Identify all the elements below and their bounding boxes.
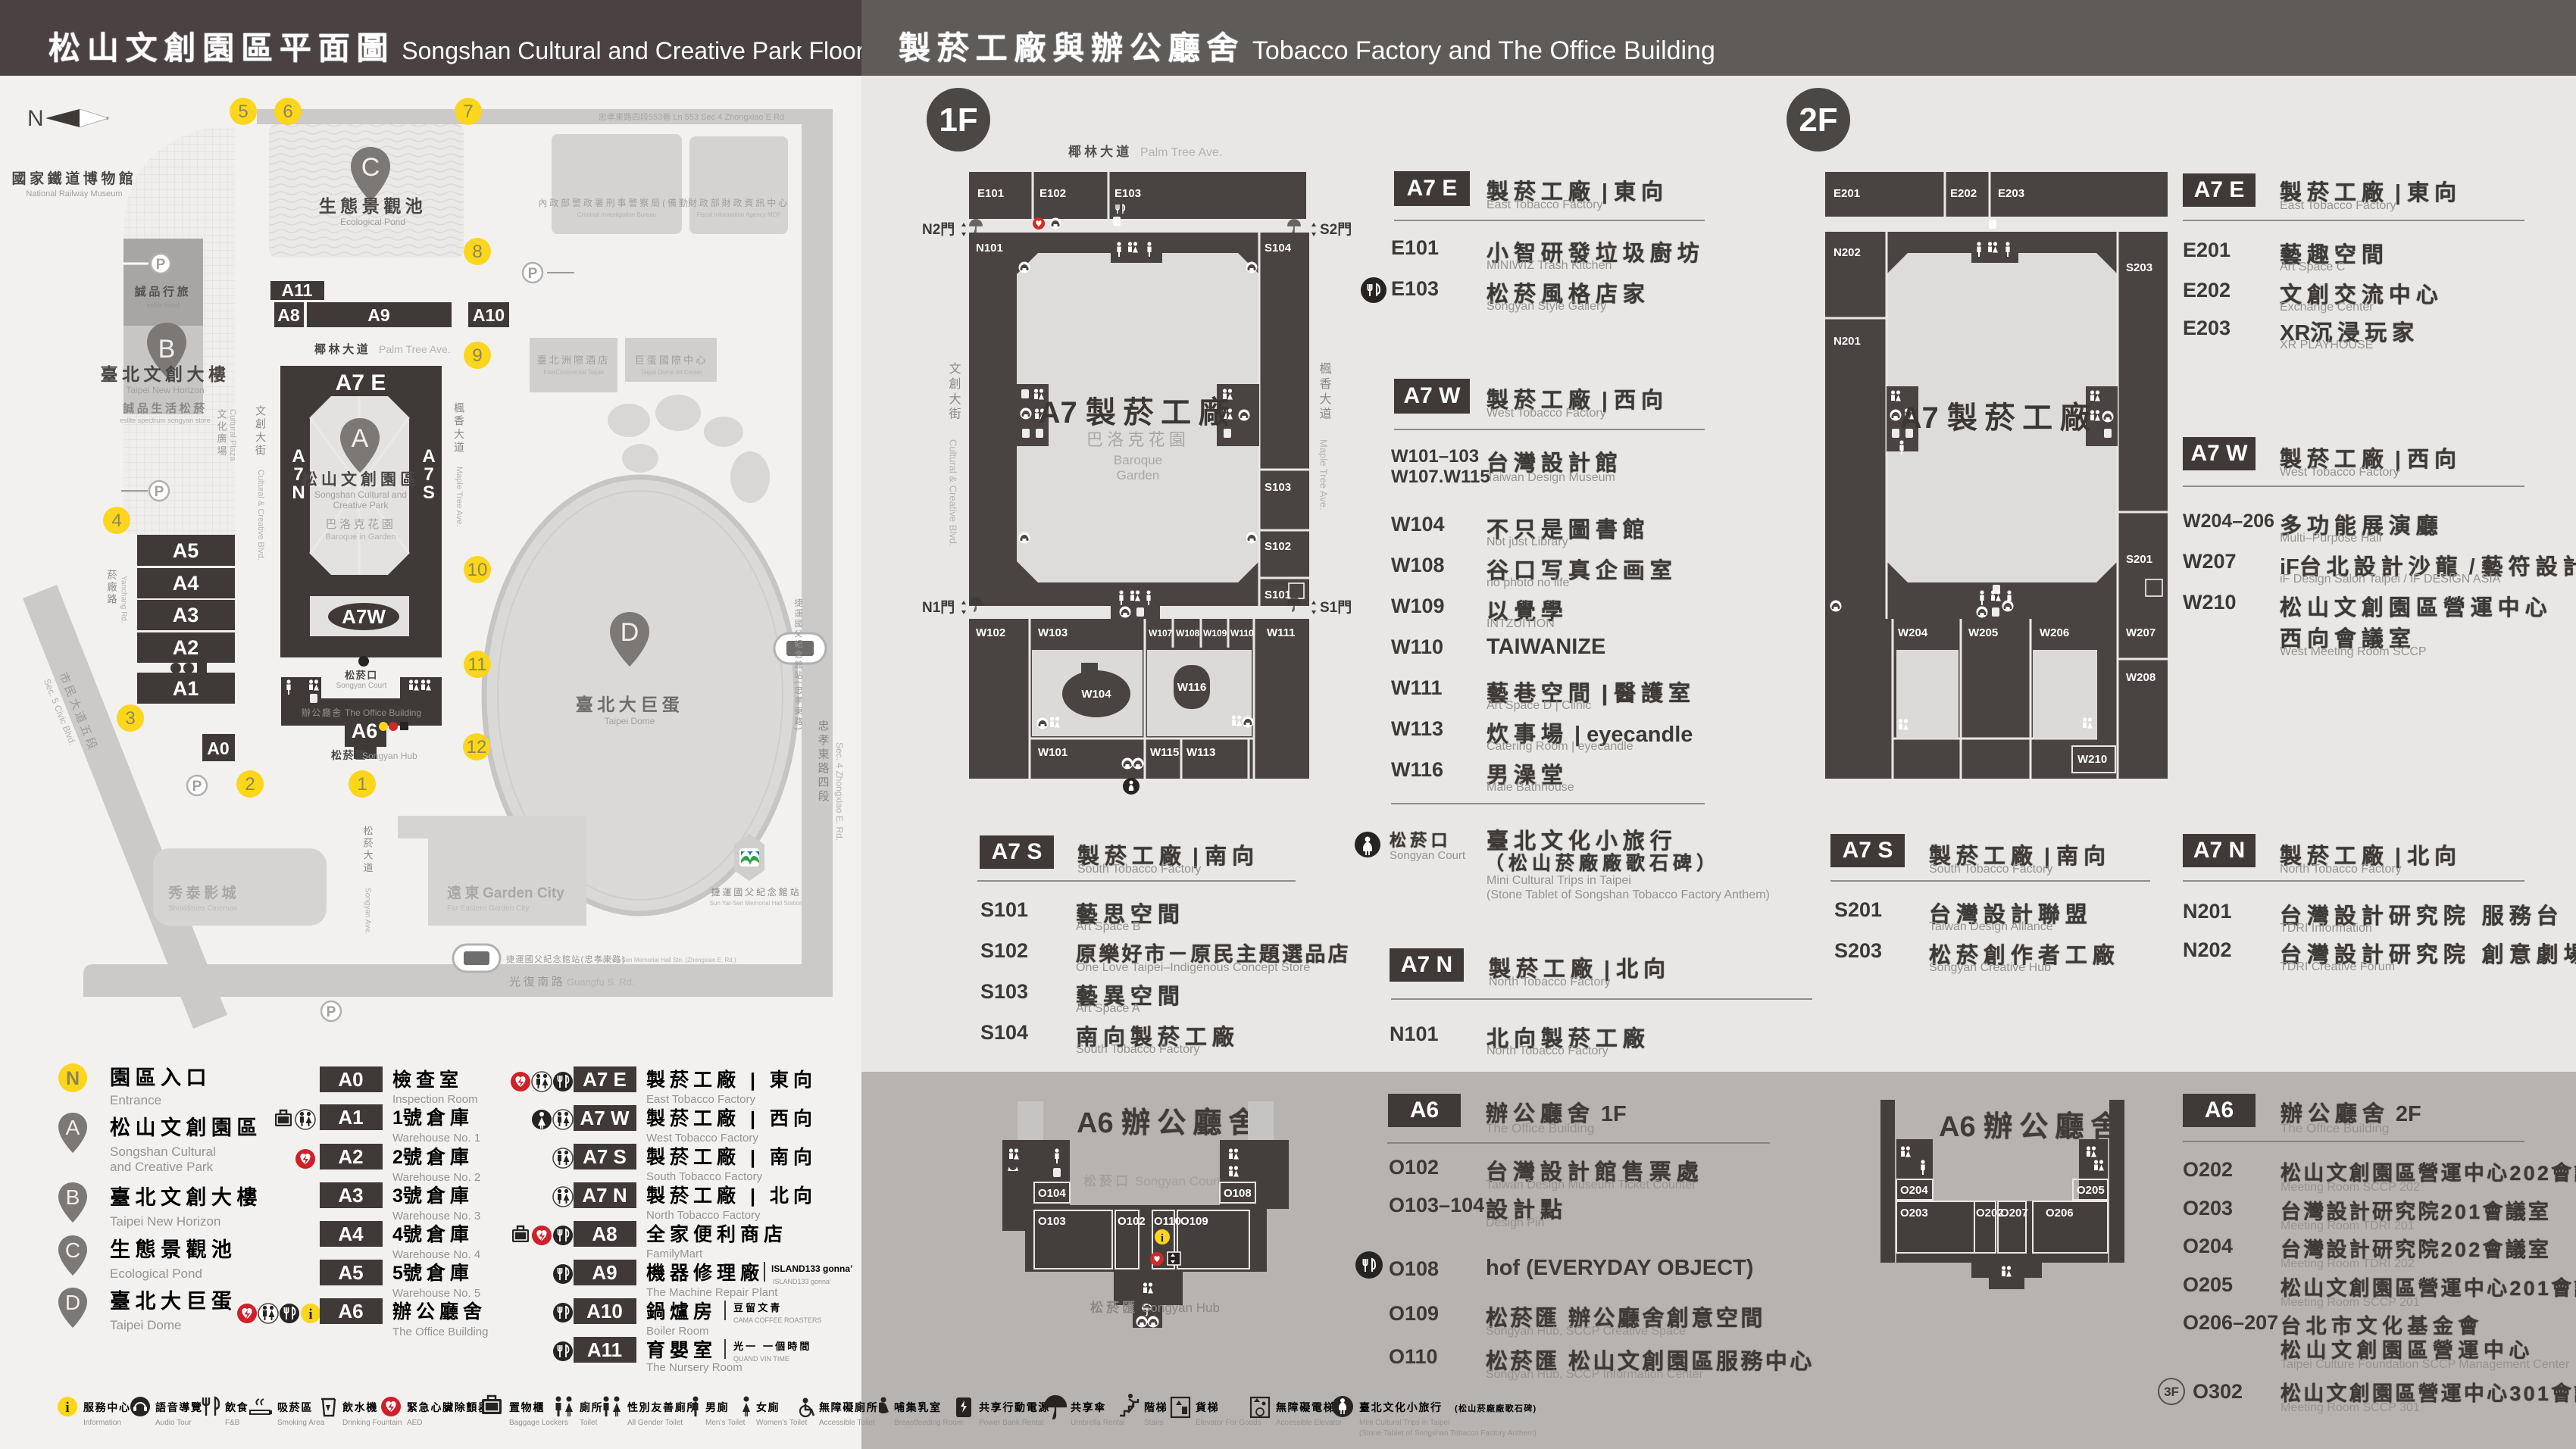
svg-text:Palm Tree Ave.: Palm Tree Ave. — [379, 343, 451, 355]
svg-text:A11: A11 — [587, 1338, 622, 1361]
svg-text:Toilet: Toilet — [580, 1419, 598, 1427]
svg-text:W207: W207 — [2126, 626, 2156, 639]
svg-text:製菸工廠 | 東向: 製菸工廠 | 東向 — [646, 1069, 817, 1091]
svg-text:W115: W115 — [1150, 746, 1179, 759]
svg-text:A7 E: A7 E — [336, 370, 386, 395]
svg-text:內政部警政署刑事警察局(備勤): 內政部警政署刑事警察局(備勤) — [538, 197, 695, 208]
svg-text:Songshan Cultural and: Songshan Cultural and — [314, 489, 407, 500]
svg-text:W111: W111 — [1267, 626, 1296, 639]
svg-text:B: B — [66, 1185, 80, 1209]
svg-text:C: C — [361, 153, 380, 182]
svg-text:臺北文創大樓: 臺北文創大樓 — [110, 1185, 262, 1209]
svg-text:Warehouse No. 2: Warehouse No. 2 — [392, 1171, 480, 1184]
svg-text:1號倉庫: 1號倉庫 — [392, 1107, 474, 1129]
svg-text:S103: S103 — [1265, 481, 1291, 494]
svg-text:3: 3 — [125, 708, 135, 729]
svg-text:Fiscal Information Agency MOF: Fiscal Information Agency MOF — [696, 211, 781, 218]
svg-text:O104: O104 — [1038, 1187, 1066, 1200]
svg-text:O207: O207 — [2000, 1207, 2028, 1219]
svg-text:W109: W109 — [1203, 628, 1227, 639]
svg-text:A7 N: A7 N — [582, 1184, 627, 1207]
svg-text:Baroque: Baroque — [1114, 453, 1162, 467]
svg-text:國家鐵道博物館: 國家鐵道博物館 — [12, 170, 137, 187]
svg-text:Warehouse No. 4: Warehouse No. 4 — [392, 1248, 480, 1261]
svg-text:The Machine Repair Plant: The Machine Repair Plant — [646, 1286, 778, 1299]
svg-text:A4: A4 — [173, 572, 199, 595]
svg-text:誠品行旅: 誠品行旅 — [135, 285, 191, 298]
svg-text:W101: W101 — [1038, 746, 1068, 759]
svg-text:O108: O108 — [1224, 1187, 1252, 1200]
svg-text:7: 7 — [293, 464, 303, 485]
svg-text:Cultural & Creative Blvd.: Cultural & Creative Blvd. — [256, 470, 265, 561]
svg-text:A: A — [422, 446, 435, 467]
svg-text:Cultural & Creative Blvd.: Cultural & Creative Blvd. — [948, 439, 959, 547]
svg-text:Sec. 4 Zhongxiao E. Rd.: Sec. 4 Zhongxiao E. Rd. — [834, 742, 845, 841]
svg-text:Taipei New Horizon: Taipei New Horizon — [110, 1214, 220, 1229]
svg-text:Ecological Pond: Ecological Pond — [110, 1266, 202, 1281]
svg-text:W206: W206 — [2040, 626, 2069, 639]
svg-text:Accessible Toilet: Accessible Toilet — [819, 1419, 875, 1427]
svg-text:Creative Park: Creative Park — [333, 500, 389, 511]
svg-text:S: S — [423, 482, 435, 503]
svg-text:語音導覽: 語音導覽 — [155, 1401, 203, 1413]
svg-text:1F: 1F — [939, 101, 977, 139]
svg-text:臺北文創大樓: 臺北文創大樓 — [100, 364, 230, 384]
svg-text:S201: S201 — [2126, 553, 2152, 566]
svg-text:Men’s Toilet: Men’s Toilet — [705, 1419, 746, 1427]
svg-text:A6: A6 — [338, 1300, 363, 1323]
svg-text:O204: O204 — [1900, 1184, 1928, 1197]
svg-text:The Nursery Room: The Nursery Room — [646, 1361, 742, 1374]
svg-text:O103: O103 — [1038, 1215, 1066, 1228]
svg-text:松菸大道: 松菸大道 — [362, 826, 374, 874]
svg-text:InterContinental Taipei: InterContinental Taipei — [543, 369, 604, 376]
svg-text:巴洛克花園: 巴洛克花園 — [1086, 430, 1190, 449]
svg-text:S104: S104 — [1265, 242, 1292, 255]
svg-text:North Tobacco Factory: North Tobacco Factory — [646, 1209, 761, 1222]
svg-text:豆留文青: 豆留文青 — [733, 1302, 782, 1313]
svg-text:Garden: Garden — [1117, 468, 1160, 482]
svg-text:Taipei Dome Int Center: Taipei Dome Int Center — [640, 369, 702, 376]
svg-text:Songyan Court: Songyan Court — [336, 682, 387, 690]
svg-text:巴洛克花園: 巴洛克花園 — [325, 518, 395, 531]
svg-text:W104: W104 — [1081, 688, 1111, 701]
svg-text:臺北文化小旅行: 臺北文化小旅行 — [1359, 1401, 1443, 1413]
svg-text:A7 製菸工廠: A7 製菸工廠 — [1039, 395, 1236, 429]
svg-text:Taipei Dome: Taipei Dome — [605, 716, 655, 726]
svg-text:i: i — [1161, 1232, 1164, 1244]
svg-text:辦公廳舍 The Office Building: 辦公廳舍 The Office Building — [302, 707, 421, 718]
svg-text:A5: A5 — [338, 1261, 363, 1284]
svg-text:忠孝東路四段: 忠孝東路四段 — [817, 720, 830, 804]
svg-text:Smoking Area: Smoking Area — [277, 1419, 325, 1427]
svg-text:Warehouse No. 5: Warehouse No. 5 — [392, 1287, 480, 1300]
svg-text:Warehouse No. 1: Warehouse No. 1 — [392, 1132, 480, 1145]
svg-text:eslite hotel: eslite hotel — [146, 301, 179, 309]
svg-text:Criminal Investigation Bureau: Criminal Investigation Bureau — [577, 211, 657, 218]
svg-text:捷運國父紀念館站: 捷運國父紀念館站 — [711, 886, 801, 898]
svg-text:Breastfeeding Room: Breastfeeding Room — [894, 1419, 963, 1427]
svg-text:松菸匯: 松菸匯 — [331, 749, 367, 761]
svg-text:E202: E202 — [1950, 187, 1977, 200]
svg-text:園區入口: 園區入口 — [110, 1066, 211, 1089]
svg-text:2號倉庫: 2號倉庫 — [392, 1146, 474, 1168]
svg-text:S102: S102 — [1265, 540, 1291, 553]
svg-text:Yanchang Rd.: Yanchang Rd. — [120, 576, 128, 623]
svg-text:E102: E102 — [1039, 187, 1066, 200]
svg-text:Mini Cultural Trips in Taipei: Mini Cultural Trips in Taipei — [1359, 1419, 1449, 1427]
svg-text:製菸工廠 | 南向: 製菸工廠 | 南向 — [646, 1146, 817, 1168]
svg-text:生態景觀池: 生態景觀池 — [319, 196, 427, 216]
svg-text:Boiler Room: Boiler Room — [646, 1325, 709, 1338]
svg-text:Elevator For Goods: Elevator For Goods — [1196, 1419, 1261, 1427]
svg-text:檢查室: 檢查室 — [392, 1069, 463, 1091]
svg-text:男廁: 男廁 — [705, 1401, 729, 1413]
svg-text:A7 W: A7 W — [580, 1107, 630, 1129]
svg-text:財政部財政資訊中心: 財政部財政資訊中心 — [688, 197, 789, 208]
svg-text:共享行動電源: 共享行動電源 — [979, 1401, 1050, 1413]
svg-text:椰林大道: 椰林大道 — [314, 342, 370, 356]
svg-text:W205: W205 — [1968, 626, 1998, 639]
svg-text:辦公廳舍: 辦公廳舍 — [392, 1301, 486, 1323]
svg-text:廁所: 廁所 — [580, 1401, 603, 1413]
svg-text:A10: A10 — [473, 305, 505, 325]
svg-text:N2門: N2門 — [922, 221, 958, 238]
svg-text:松菸口 Songyan Court: 松菸口 Songyan Court — [1083, 1173, 1221, 1188]
svg-text:West Tobacco Factory: West Tobacco Factory — [646, 1132, 758, 1145]
svg-text:誠品生活松菸: 誠品生活松菸 — [123, 401, 208, 415]
svg-text:置物櫃: 置物櫃 — [509, 1401, 545, 1413]
svg-text:10: 10 — [467, 560, 488, 580]
svg-text:The Office Building: The Office Building — [392, 1326, 488, 1338]
svg-text:W113: W113 — [1186, 746, 1215, 759]
svg-text:O206: O206 — [2046, 1207, 2074, 1219]
svg-text:楓香大道: 楓香大道 — [1318, 362, 1332, 422]
svg-text:National Railway Museum: National Railway Museum — [26, 189, 122, 198]
svg-text:Taipei Dome: Taipei Dome — [110, 1318, 182, 1332]
svg-text:6: 6 — [283, 101, 292, 122]
svg-text:Power Bank Rental: Power Bank Rental — [979, 1419, 1044, 1427]
svg-text:2: 2 — [245, 774, 255, 795]
svg-text:椰林大道: 椰林大道 — [1068, 144, 1132, 159]
svg-text:W116: W116 — [1177, 681, 1206, 694]
svg-text:貨梯: 貨梯 — [1195, 1401, 1219, 1413]
svg-text:S203: S203 — [2126, 261, 2152, 274]
svg-text:臺北大巨蛋: 臺北大巨蛋 — [110, 1290, 236, 1313]
svg-text:2F: 2F — [1799, 101, 1837, 139]
svg-text:Baroque in Garden: Baroque in Garden — [326, 532, 396, 542]
svg-text:W204: W204 — [1898, 626, 1928, 639]
svg-text:7: 7 — [463, 101, 473, 122]
svg-text:秀泰影城: 秀泰影城 — [167, 884, 239, 901]
svg-text:N: N — [66, 1068, 80, 1089]
svg-text:S1門: S1門 — [1320, 599, 1355, 616]
svg-text:Showtimes Cinemas: Showtimes Cinemas — [168, 904, 237, 913]
svg-text:Taipei New Horizon: Taipei New Horizon — [126, 385, 204, 395]
svg-text:A2: A2 — [338, 1145, 363, 1168]
svg-text:N202: N202 — [1834, 246, 1861, 259]
svg-text:Warehouse No. 3: Warehouse No. 3 — [392, 1210, 480, 1223]
svg-text:Audio Tour: Audio Tour — [155, 1419, 192, 1427]
svg-text:A1: A1 — [173, 677, 199, 700]
svg-text:D: D — [621, 618, 639, 647]
svg-text:O102: O102 — [1118, 1215, 1146, 1228]
svg-text:East Tobacco Factory: East Tobacco Factory — [646, 1093, 755, 1106]
svg-text:製菸工廠 | 北向: 製菸工廠 | 北向 — [646, 1185, 817, 1207]
svg-text:製菸工廠 | 西向: 製菸工廠 | 西向 — [646, 1107, 817, 1129]
svg-text:(松山菸廠廠歌石碑): (松山菸廠廠歌石碑) — [1455, 1403, 1537, 1413]
svg-text:Accessible Elevator: Accessible Elevator — [1276, 1419, 1343, 1427]
svg-text:巨蛋國際中心: 巨蛋國際中心 — [635, 354, 708, 366]
svg-text:光一 一個時間: 光一 一個時間 — [733, 1341, 811, 1352]
svg-text:8: 8 — [472, 242, 482, 262]
svg-text:A4: A4 — [338, 1223, 364, 1245]
svg-text:A7W: A7W — [342, 605, 386, 628]
svg-text:4: 4 — [111, 511, 121, 531]
svg-text:W102: W102 — [976, 626, 1005, 639]
svg-text:W110: W110 — [1230, 628, 1254, 639]
svg-text:文化廣場: 文化廣場 — [216, 409, 227, 457]
svg-text:3號倉庫: 3號倉庫 — [392, 1185, 474, 1207]
svg-text:無障礙廁所: 無障礙廁所 — [819, 1401, 878, 1413]
svg-text:A7 S: A7 S — [583, 1145, 627, 1168]
svg-text:C: C — [65, 1238, 80, 1262]
svg-text:ISLAND133 gonna’: ISLAND133 gonna’ — [771, 1263, 852, 1274]
svg-text:松菸匯 Songyan Hub: 松菸匯 Songyan Hub — [1090, 1300, 1220, 1315]
svg-text:女廁: 女廁 — [756, 1401, 780, 1413]
svg-text:i: i — [65, 1400, 69, 1416]
svg-text:9: 9 — [472, 345, 482, 366]
svg-text:7: 7 — [424, 464, 433, 485]
svg-text:吸菸區: 吸菸區 — [277, 1401, 313, 1413]
svg-text:育嬰室: 育嬰室 — [646, 1339, 717, 1361]
svg-text:A3: A3 — [338, 1184, 363, 1207]
svg-text:鍋爐房: 鍋爐房 — [646, 1301, 717, 1323]
svg-text:E201: E201 — [1834, 187, 1860, 200]
svg-text:All Gender Toilet: All Gender Toilet — [627, 1419, 683, 1427]
svg-text:and Creative Park: and Creative Park — [110, 1160, 214, 1174]
svg-text:W208: W208 — [2126, 671, 2156, 684]
svg-text:O109: O109 — [1180, 1215, 1208, 1228]
svg-text:Stairs: Stairs — [1144, 1419, 1164, 1427]
svg-text:共享傘: 共享傘 — [1071, 1401, 1106, 1413]
svg-text:緊急心臟除顫器: 緊急心臟除顫器 — [407, 1401, 490, 1413]
svg-text:A5: A5 — [173, 539, 199, 562]
svg-text:O203: O203 — [1900, 1207, 1928, 1219]
svg-text:Women’s Toilet: Women’s Toilet — [756, 1419, 807, 1427]
svg-text:South Tobacco Factory: South Tobacco Factory — [646, 1170, 763, 1183]
svg-text:菸廠路: 菸廠路 — [106, 570, 117, 606]
svg-text:B: B — [158, 335, 176, 364]
svg-text:D: D — [65, 1291, 80, 1314]
svg-text:生態景觀池: 生態景觀池 — [110, 1238, 236, 1261]
svg-text:N101: N101 — [976, 242, 1003, 255]
svg-text:N: N — [27, 106, 44, 131]
svg-text:Baggage Lockers: Baggage Lockers — [509, 1419, 568, 1427]
svg-text:A: A — [66, 1116, 80, 1139]
svg-text:Sun Yat-Sen Memorial Hall Stn.: Sun Yat-Sen Memorial Hall Stn. (Zhongxia… — [599, 957, 736, 963]
svg-text:Entrance: Entrance — [110, 1093, 161, 1107]
svg-text:ISLAND133 gonna’: ISLAND133 gonna’ — [773, 1278, 831, 1285]
svg-text:E101: E101 — [977, 187, 1004, 200]
svg-text:松山文創園區: 松山文創園區 — [302, 470, 420, 489]
svg-text:Sun Yat-Sen Memorial Hall Stat: Sun Yat-Sen Memorial Hall Station — [710, 900, 803, 907]
svg-text:W107: W107 — [1149, 628, 1173, 639]
svg-text:A9: A9 — [592, 1261, 617, 1284]
svg-text:A7 製菸工廠: A7 製菸工廠 — [1900, 401, 2098, 435]
svg-text:Palm Tree Ave.: Palm Tree Ave. — [1140, 146, 1222, 159]
svg-text:5: 5 — [238, 101, 248, 122]
svg-text:O205: O205 — [2077, 1184, 2105, 1197]
svg-text:N201: N201 — [1834, 335, 1861, 348]
svg-text:Umbrella Rental: Umbrella Rental — [1071, 1419, 1125, 1427]
svg-text:1: 1 — [357, 774, 367, 795]
svg-text:捷運國父紀念館站(忠孝東路): 捷運國父紀念館站(忠孝東路) — [793, 598, 803, 732]
svg-text:E203: E203 — [1998, 187, 2024, 200]
svg-text:遠東Garden City: 遠東Garden City — [447, 884, 564, 901]
svg-text:5號倉庫: 5號倉庫 — [392, 1262, 474, 1284]
svg-text:光復南路: 光復南路 — [509, 976, 565, 988]
svg-text:飲水機: 飲水機 — [342, 1401, 378, 1413]
svg-text:A: A — [292, 446, 305, 467]
svg-text:Maple Tree Ave.: Maple Tree Ave. — [1318, 439, 1330, 511]
svg-text:機器修理廠: 機器修理廠 — [646, 1262, 764, 1284]
svg-text:W103: W103 — [1038, 626, 1068, 639]
svg-text:3F: 3F — [2164, 1385, 2179, 1399]
svg-text:Inspection Room: Inspection Room — [392, 1093, 478, 1106]
svg-text:A6: A6 — [352, 720, 378, 742]
svg-text:12: 12 — [467, 737, 487, 757]
svg-text:A2: A2 — [173, 636, 199, 659]
svg-text:階梯: 階梯 — [1144, 1401, 1168, 1413]
svg-text:4號倉庫: 4號倉庫 — [392, 1223, 474, 1245]
svg-text:A: A — [352, 424, 369, 453]
svg-text:AED: AED — [407, 1419, 423, 1427]
svg-text:Songshan Cultural: Songshan Cultural — [110, 1145, 216, 1159]
svg-text:Drinking Fountain: Drinking Fountain — [342, 1419, 402, 1427]
svg-text:W210: W210 — [2077, 753, 2107, 766]
svg-text:文創大街: 文創大街 — [255, 405, 267, 457]
svg-text:哺集乳室: 哺集乳室 — [894, 1401, 942, 1413]
svg-text:(Stone Tablet of Songshan Toba: (Stone Tablet of Songshan Tobacco Factor… — [1359, 1429, 1537, 1438]
svg-text:eslite spectrum songyan store: eslite spectrum songyan store — [120, 417, 211, 424]
svg-text:松山文創園區: 松山文創園區 — [110, 1116, 262, 1139]
svg-text:Guangfu S. Rd.: Guangfu S. Rd. — [567, 976, 635, 988]
svg-text:F&B: F&B — [225, 1419, 240, 1427]
svg-text:無障礙電梯: 無障礙電梯 — [1276, 1401, 1335, 1413]
svg-text:A9: A9 — [367, 305, 389, 325]
svg-text:Songyan Ave.: Songyan Ave. — [364, 888, 372, 935]
svg-text:A0: A0 — [338, 1068, 363, 1091]
svg-text:FamilyMart: FamilyMart — [646, 1248, 703, 1260]
svg-text:A11: A11 — [282, 280, 313, 300]
svg-text:A10: A10 — [586, 1300, 623, 1323]
svg-text:A3: A3 — [173, 604, 199, 626]
svg-text:A7 E: A7 E — [583, 1068, 627, 1091]
svg-text:CAMA COFFEE ROASTERS: CAMA COFFEE ROASTERS — [733, 1316, 822, 1324]
svg-text:忠孝東路四段553巷 Ln 553 Sec 4 Zhongx: 忠孝東路四段553巷 Ln 553 Sec 4 Zhongxiao E Rd — [599, 111, 784, 122]
svg-text:11: 11 — [468, 654, 487, 675]
svg-text:性別友善廁所: 性別友善廁所 — [627, 1401, 699, 1413]
svg-text:Far Eastern Garden City: Far Eastern Garden City — [447, 904, 529, 913]
svg-text:Ecological Pond: Ecological Pond — [340, 217, 405, 227]
svg-text:Cultural Plaza: Cultural Plaza — [228, 409, 237, 461]
svg-text:W108: W108 — [1176, 628, 1200, 639]
svg-text:服務中心: 服務中心 — [83, 1401, 131, 1413]
svg-text:S2門: S2門 — [1320, 221, 1355, 238]
svg-text:楓香大道: 楓香大道 — [453, 402, 465, 454]
svg-text:A1: A1 — [338, 1106, 363, 1129]
svg-text:飲食: 飲食 — [224, 1401, 249, 1413]
svg-text:N: N — [292, 482, 305, 503]
svg-text:文創大街: 文創大街 — [947, 362, 961, 422]
svg-text:S101: S101 — [1265, 589, 1291, 601]
svg-text:Information: Information — [83, 1419, 121, 1427]
svg-text:臺北大巨蛋: 臺北大巨蛋 — [576, 695, 684, 714]
svg-text:A8: A8 — [592, 1223, 617, 1245]
svg-text:A0: A0 — [207, 739, 229, 758]
svg-text:臺北洲際酒店: 臺北洲際酒店 — [537, 354, 611, 366]
svg-text:松菸口: 松菸口 — [345, 670, 378, 681]
svg-text:Maple Tree Ave.: Maple Tree Ave. — [455, 467, 464, 526]
svg-text:N1門: N1門 — [922, 599, 958, 616]
svg-text:E103: E103 — [1114, 187, 1141, 200]
svg-text:A8: A8 — [277, 305, 300, 325]
svg-text:全家便利商店: 全家便利商店 — [646, 1223, 787, 1245]
svg-text:Songyan Hub: Songyan Hub — [362, 751, 417, 761]
